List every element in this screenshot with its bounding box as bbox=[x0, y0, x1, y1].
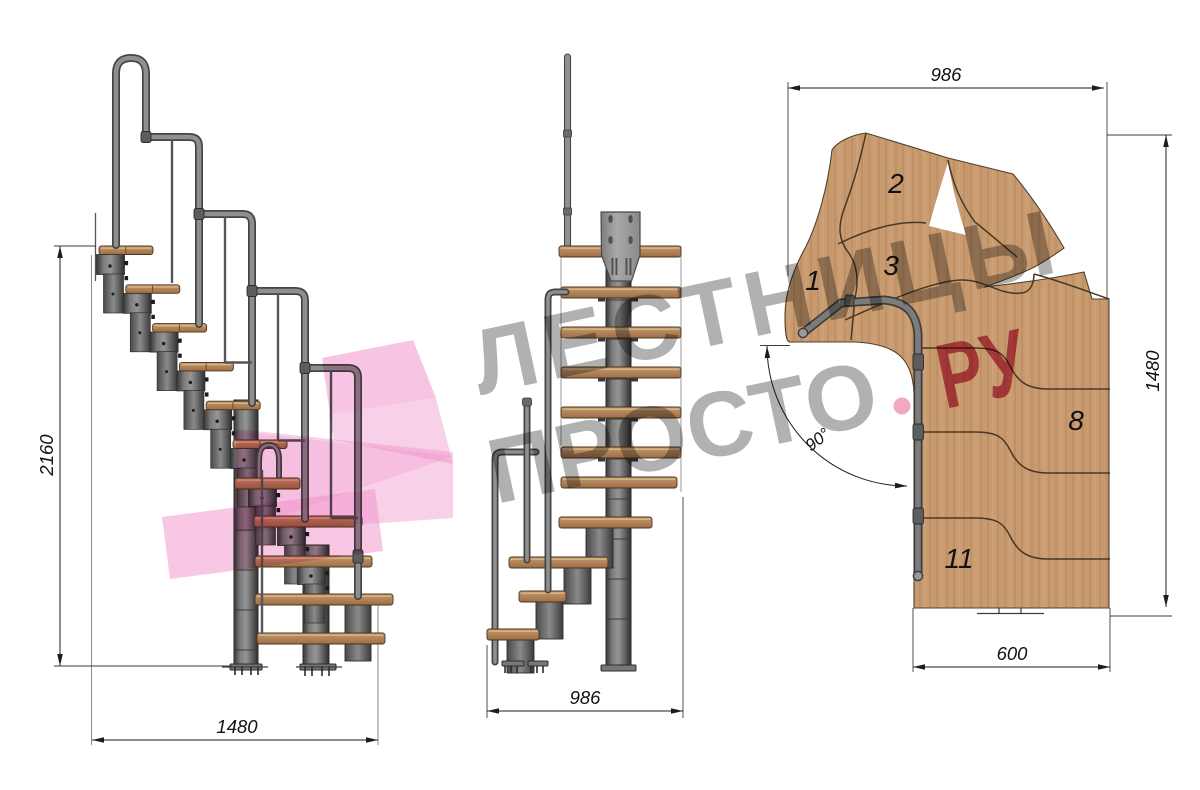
svg-text:11: 11 bbox=[944, 543, 973, 574]
svg-text:1480: 1480 bbox=[1142, 350, 1163, 392]
svg-text:8: 8 bbox=[1068, 405, 1084, 436]
svg-text:2: 2 bbox=[887, 168, 904, 199]
svg-text:1480: 1480 bbox=[216, 716, 258, 737]
svg-text:600: 600 bbox=[997, 643, 1029, 664]
svg-text:2160: 2160 bbox=[36, 434, 57, 477]
svg-text:986: 986 bbox=[931, 64, 963, 85]
svg-text:986: 986 bbox=[570, 687, 602, 708]
